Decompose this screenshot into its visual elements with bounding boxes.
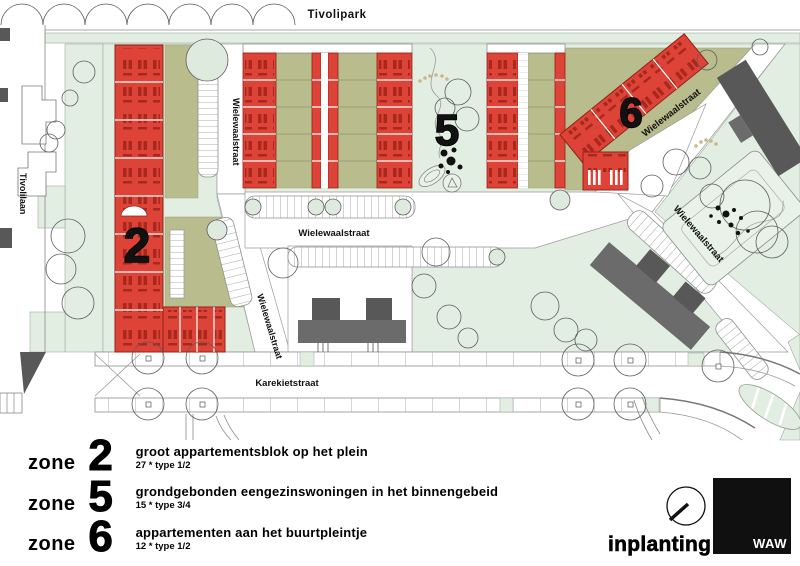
waw-logo: WAW [713, 478, 791, 554]
site-plan-page: Tivolipark Tivolilaan Wielewaalstraat Wi… [0, 0, 800, 566]
legend-zone-word: zone [28, 456, 76, 472]
waw-logo-text: WAW [753, 536, 787, 551]
zone5-marker: 5 [435, 106, 459, 155]
legend-row-zone6: zone 6 appartementen aan het buurtpleint… [28, 521, 498, 553]
tivolilaan-label: Tivolilaan [18, 173, 28, 214]
park-tree-scallops [1, 4, 295, 25]
legend-row-zone2: zone 2 groot appartementsblok op het ple… [28, 440, 498, 472]
legend-zone-word: zone [28, 537, 76, 553]
legend-zone2-number: 2 [82, 440, 120, 472]
drawing-title: inplanting [608, 533, 711, 557]
zone6-marker: 6 [619, 89, 642, 136]
tivolipark-label: Tivolipark [307, 9, 366, 21]
legend-zone5-subtitle: 15 * type 3/4 [136, 500, 499, 511]
north-compass-icon [664, 484, 708, 528]
legend-zone5-title: grondgebonden eengezinswoningen in het b… [136, 484, 499, 499]
legend-zone6-number: 6 [82, 521, 120, 553]
legend-zone2-title: groot appartementsblok op het plein [136, 444, 368, 459]
zone2-marker: 2 [124, 220, 151, 273]
legend: zone 2 groot appartementsblok op het ple… [28, 440, 498, 553]
legend-zone6-subtitle: 12 * type 1/2 [136, 541, 368, 552]
wielewaalstraat-label-middle: Wielewaalstraat [298, 228, 370, 239]
legend-zone6-title: appartementen aan het buurtpleintje [136, 525, 368, 540]
karekietstraat-area [0, 352, 800, 440]
karekietstraat-label: Karekietstraat [255, 378, 319, 389]
legend-zone-word: zone [28, 497, 76, 513]
legend-zone5-number: 5 [82, 481, 120, 513]
wielewaalstraat-label-vertical: Wielewaalstraat [231, 98, 241, 165]
legend-row-zone5: zone 5 grondgebonden eengezinswoningen i… [28, 481, 498, 513]
legend-zone2-subtitle: 27 * type 1/2 [136, 460, 368, 471]
site-plan-drawing: Tivolipark Tivolilaan Wielewaalstraat Wi… [0, 0, 800, 442]
